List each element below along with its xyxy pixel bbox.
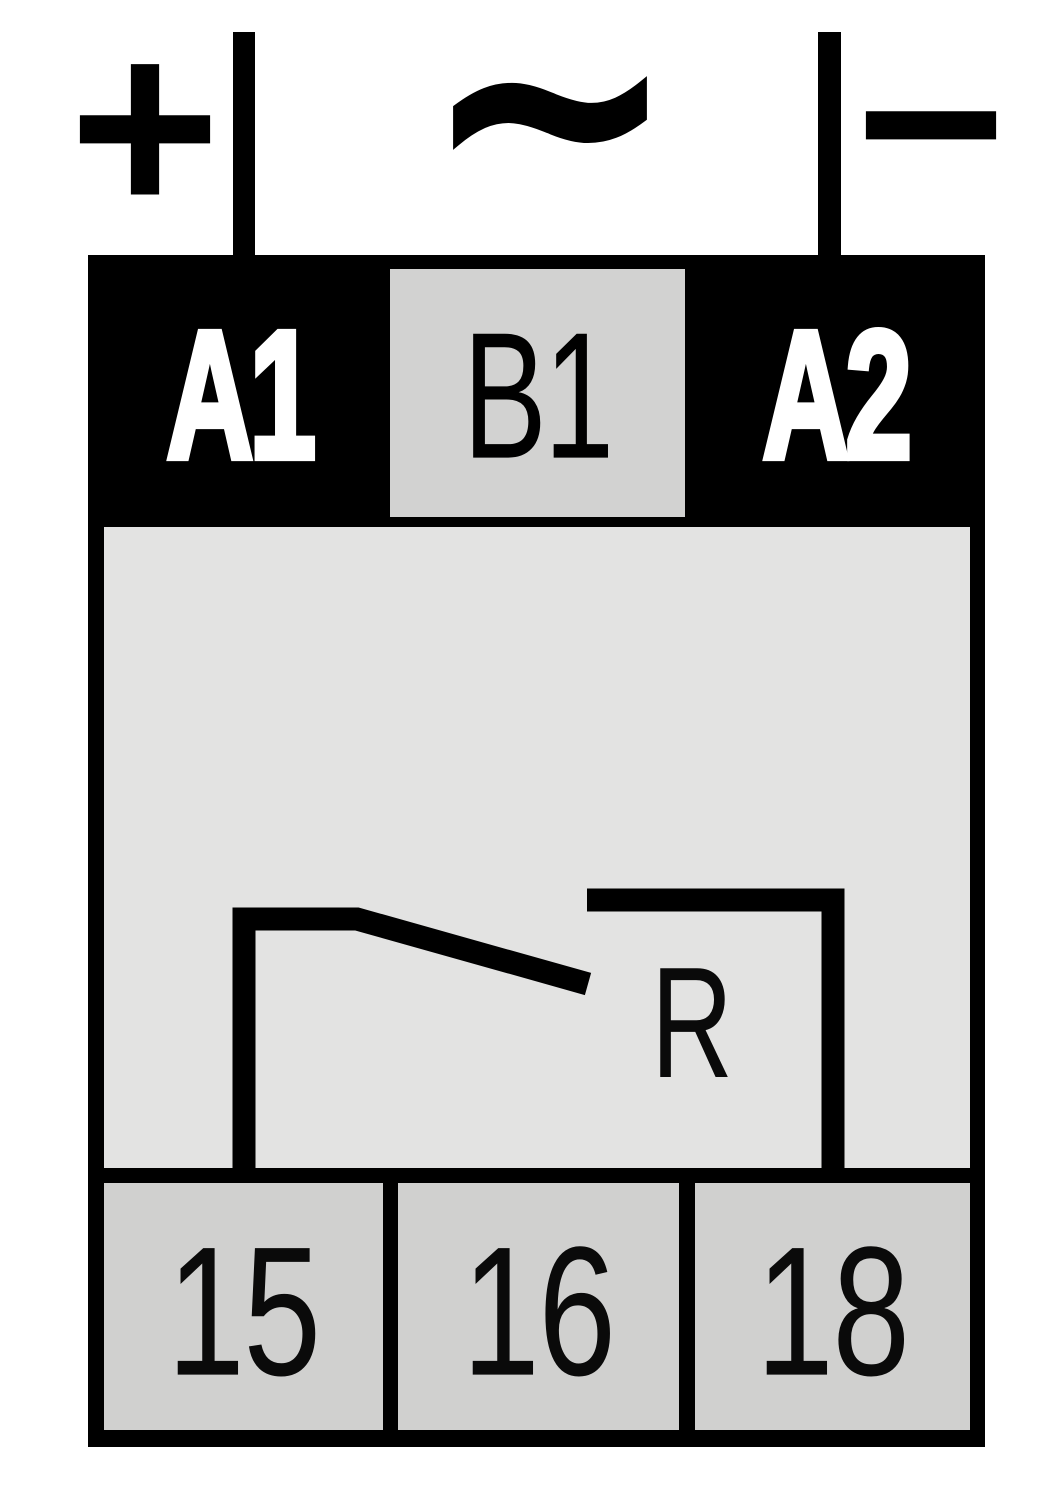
plus-polarity-icon: + [61,24,229,224]
device-body [104,527,970,1168]
terminal-label-a2: A2 [762,304,908,486]
relay-label: R [651,944,733,1102]
plus-feed-wire [233,32,255,256]
terminal-label-15: 15 [167,1218,320,1402]
ac-voltage-icon: ~ [424,0,675,254]
device-frame: A1 B1 A2 15 16 18 [88,255,985,1447]
wiring-diagram-canvas: + ~ − A1 B1 A2 15 16 18 R [0,0,1057,1500]
minus-feed-wire [818,32,841,256]
terminal-label-b1: B1 [463,307,612,487]
output-terminal-15: 15 [104,1183,383,1430]
output-terminal-16: 16 [398,1183,679,1430]
terminal-label-18: 18 [756,1218,909,1402]
coil-terminal-b1-box: B1 [390,269,685,517]
coil-terminal-a1: A1 [88,255,390,527]
coil-terminal-a2: A2 [685,255,985,527]
terminal-label-a1: A1 [166,304,312,486]
output-terminal-18: 18 [695,1183,970,1430]
terminal-label-16: 16 [462,1218,615,1402]
minus-polarity-icon: − [847,20,1015,220]
